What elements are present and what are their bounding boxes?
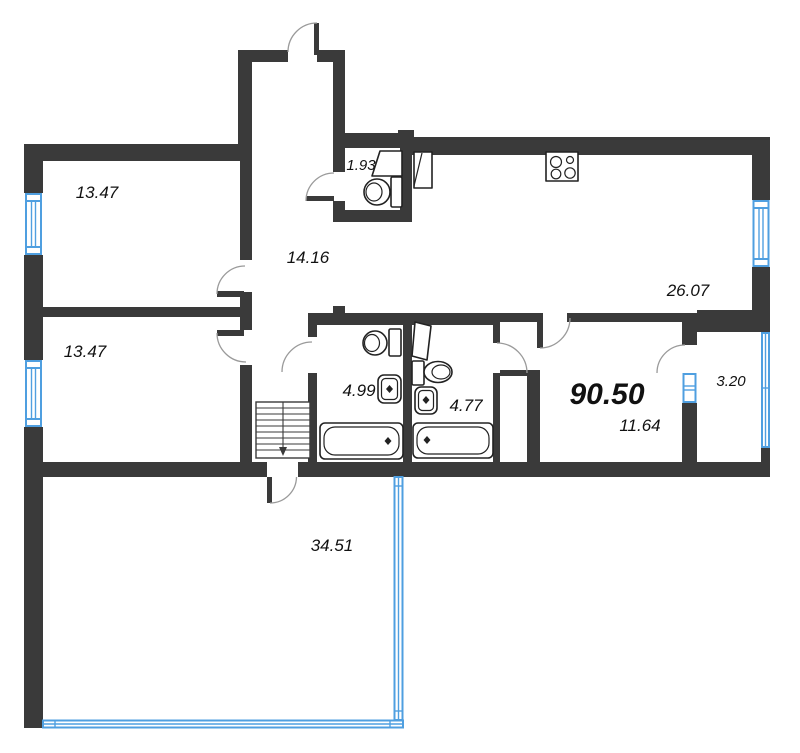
toilet-icon: [363, 329, 401, 356]
room-label-balcony: 3.20: [716, 373, 746, 390]
terrace-room-door: [267, 477, 297, 503]
toilet-icon: [364, 177, 402, 207]
bedroom-lower-door: [217, 330, 246, 362]
wall: [308, 313, 500, 325]
wall: [403, 325, 412, 462]
room-label-hallway: 14.16: [287, 248, 330, 267]
total-area-label: 90.50: [569, 378, 644, 411]
room-label-terrace: 34.51: [311, 536, 354, 555]
room-label-bedroom-lower: 13.47: [64, 342, 107, 361]
kitchen-fixtures: [414, 152, 578, 188]
wall: [412, 137, 770, 155]
wall: [317, 50, 345, 62]
sink-icon: [378, 375, 401, 403]
bathtub-icon: [320, 423, 403, 459]
window-glazing: [395, 477, 403, 720]
bathroom-left-door: [282, 342, 312, 372]
wall: [398, 130, 414, 140]
wall: [500, 370, 540, 376]
wall: [240, 365, 252, 462]
window-glazing: [762, 333, 769, 447]
wall: [682, 322, 697, 345]
wall: [240, 161, 252, 260]
stove-icon: [546, 152, 578, 181]
sink-icon: [415, 387, 437, 414]
bedroom-upper-door: [217, 266, 245, 297]
room-label-bathroom-left: 4.99: [342, 381, 376, 400]
wc-door: [306, 173, 334, 201]
kitchen-hall-door: [537, 313, 570, 348]
wall: [298, 462, 770, 477]
entry-door: [288, 23, 319, 55]
bathroom-right-fixtures: [412, 322, 493, 458]
wall: [697, 310, 770, 332]
wall: [24, 462, 267, 477]
wall: [682, 403, 697, 462]
wall: [333, 306, 345, 313]
wall: [308, 325, 317, 337]
wall: [24, 144, 252, 161]
kitchen-sink-icon: [414, 152, 432, 188]
toilet-icon: [412, 361, 452, 385]
wall: [238, 50, 252, 161]
windows: [24, 193, 770, 728]
wall: [24, 307, 245, 317]
wall: [752, 155, 770, 200]
balcony-door: [657, 345, 685, 373]
wall: [500, 313, 537, 322]
bathtub-icon: [413, 423, 493, 458]
wall: [493, 373, 500, 462]
floor-plan: 13.47 13.47 14.16 1.93 26.07 4.99 4.77 9…: [0, 0, 800, 753]
room-label-hall: 11.64: [619, 416, 660, 435]
bathroom-right-door: [497, 343, 527, 373]
room-label-bedroom-upper: 13.47: [76, 183, 119, 202]
wall: [527, 376, 540, 462]
wall: [493, 325, 500, 343]
window: [24, 193, 43, 255]
window: [682, 373, 697, 403]
washer-icon: [412, 322, 431, 360]
wall: [567, 313, 697, 322]
room-label-kitchen: 26.07: [666, 281, 710, 300]
window: [24, 360, 43, 427]
sink-icon: [372, 151, 402, 176]
wall: [761, 448, 770, 472]
window: [752, 200, 770, 267]
room-label-wc: 1.93: [346, 157, 376, 174]
stairs-icon: [256, 402, 310, 458]
wall: [240, 292, 252, 330]
wall: [238, 50, 288, 62]
room-label-bathroom-right: 4.77: [449, 396, 483, 415]
wall: [333, 62, 345, 172]
window-glazing: [43, 721, 403, 728]
